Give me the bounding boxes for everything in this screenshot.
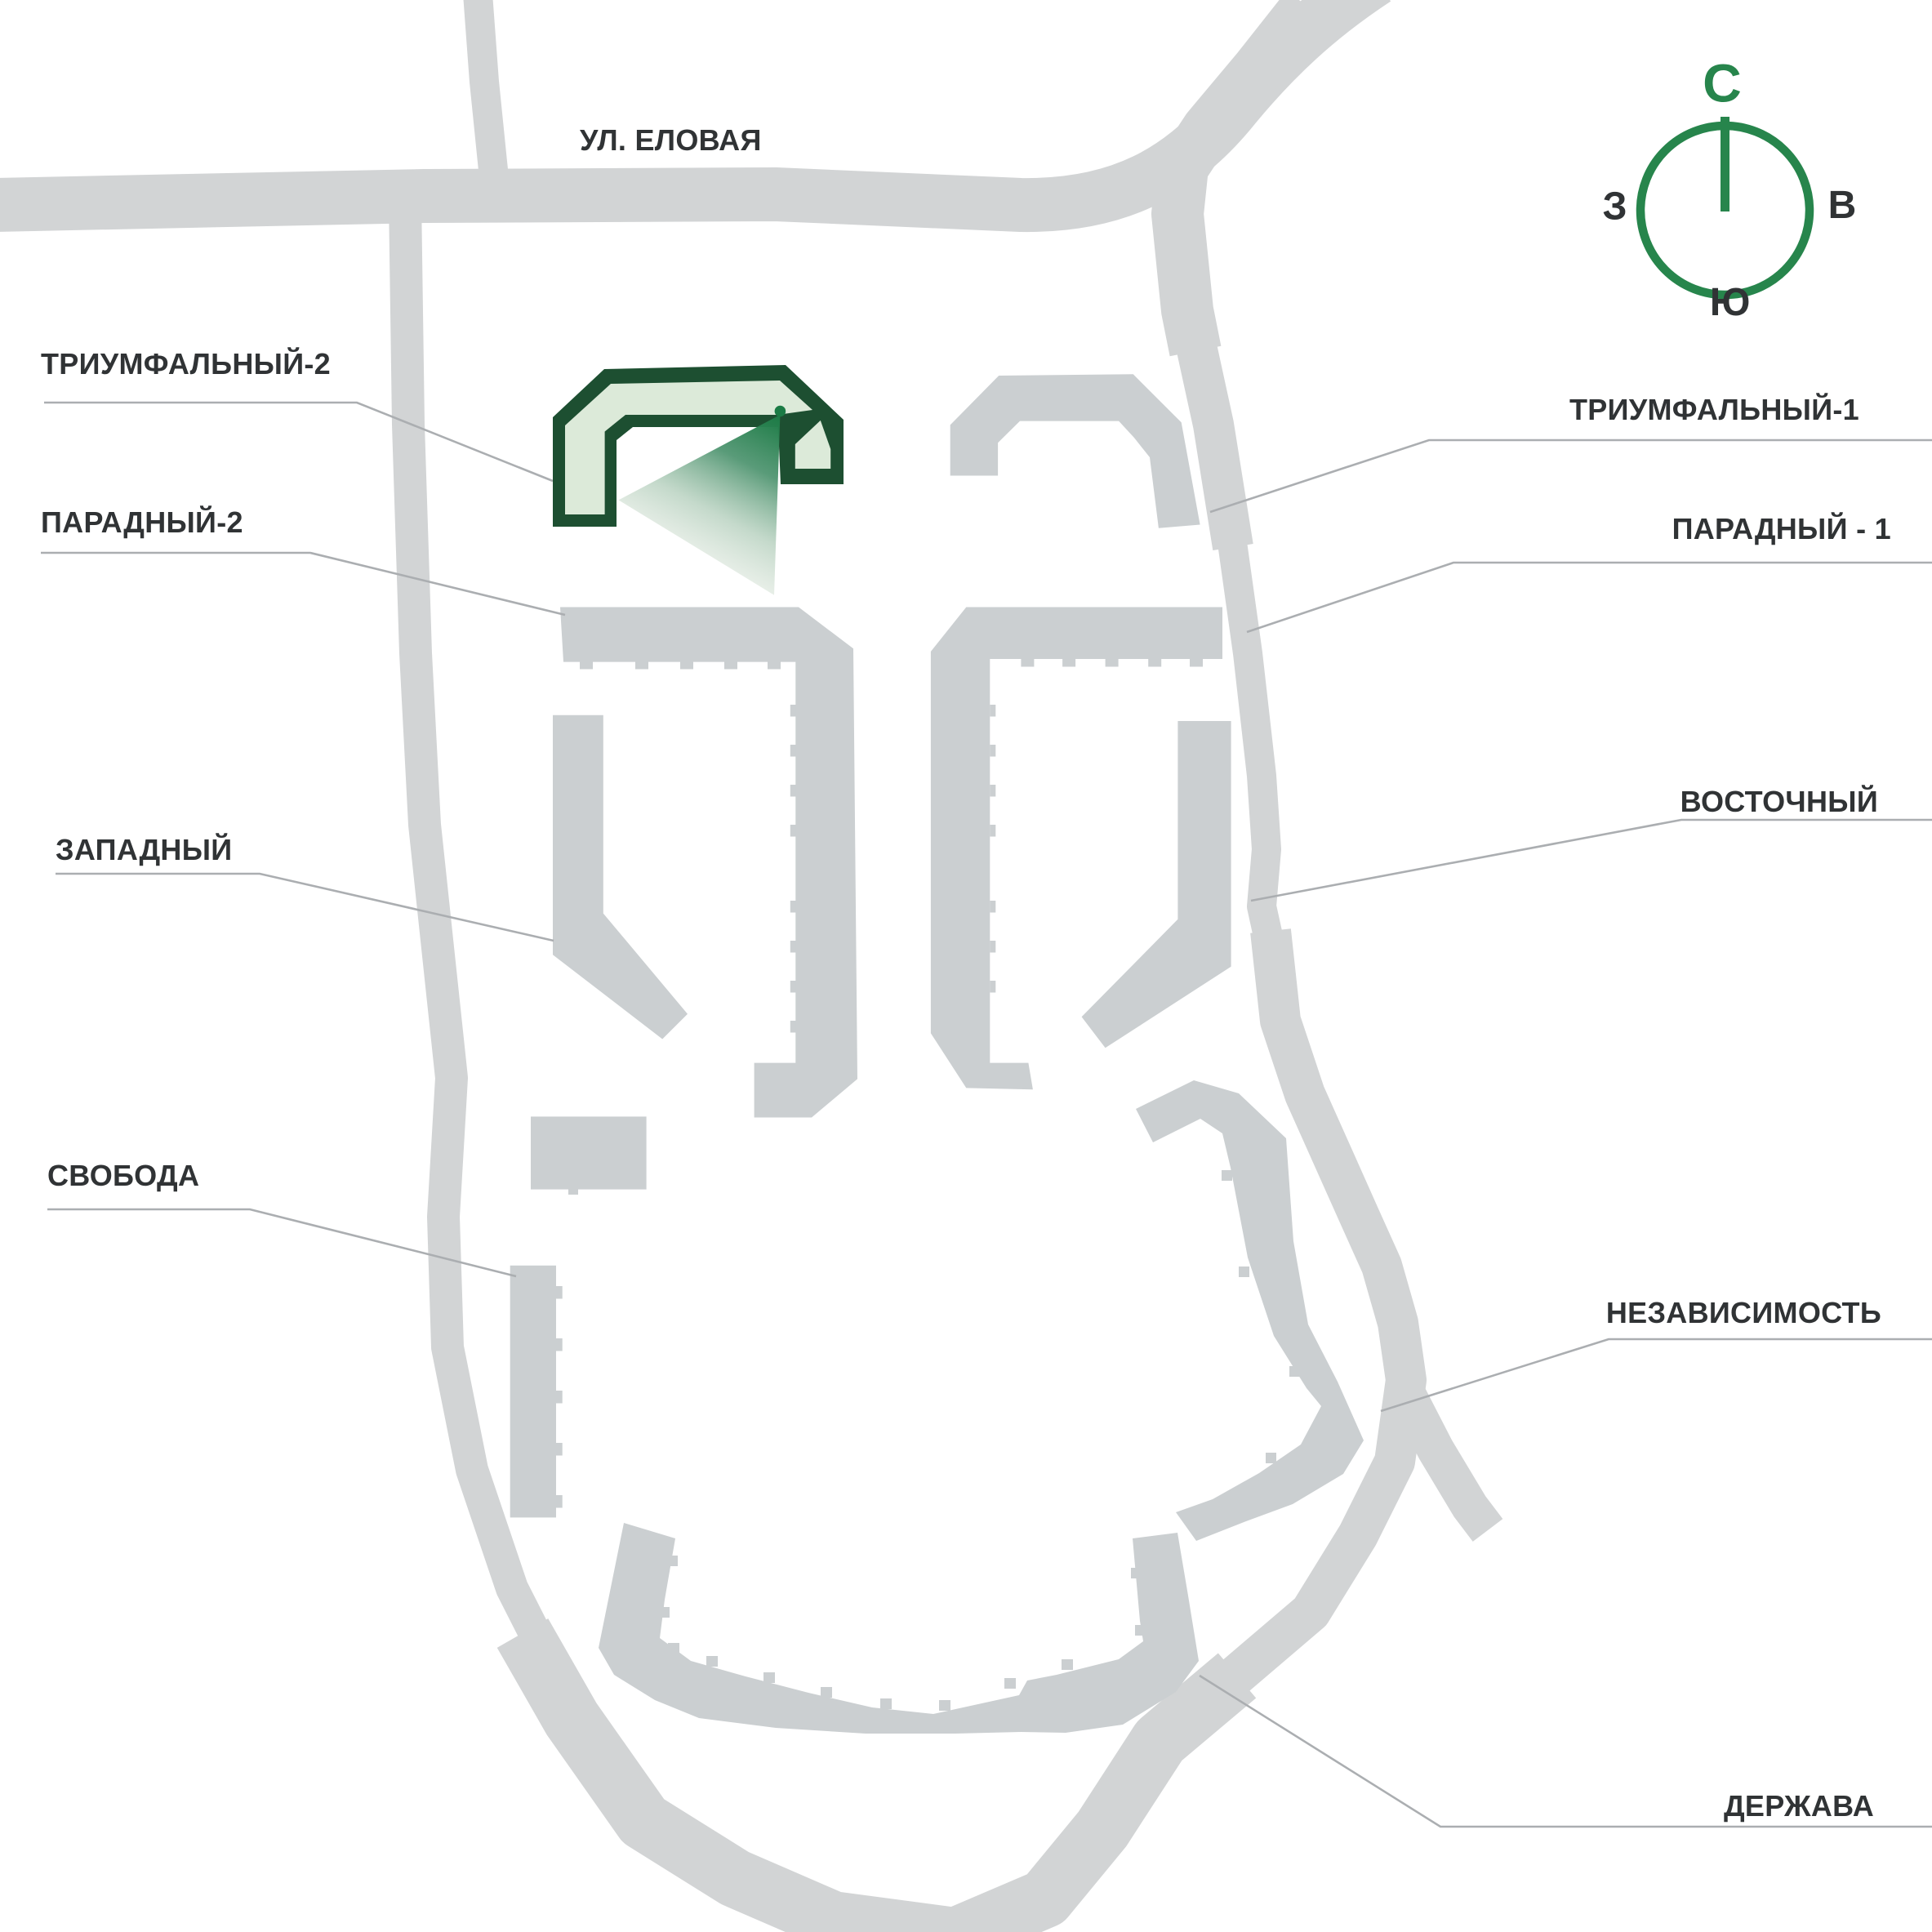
svg-text:ДЕРЖАВА: ДЕРЖАВА xyxy=(1724,1789,1874,1823)
svg-text:С: С xyxy=(1703,52,1742,113)
svg-text:ВОСТОЧНЫЙ: ВОСТОЧНЫЙ xyxy=(1680,784,1878,818)
svg-text:З: З xyxy=(1602,185,1627,229)
svg-text:ТРИУМФАЛЬНЫЙ-1: ТРИУМФАЛЬНЫЙ-1 xyxy=(1569,392,1859,426)
svg-text:СВОБОДА: СВОБОДА xyxy=(47,1159,199,1192)
svg-text:Ю: Ю xyxy=(1710,281,1751,324)
svg-text:ТРИУМФАЛЬНЫЙ-2: ТРИУМФАЛЬНЫЙ-2 xyxy=(41,346,331,381)
svg-text:ЗАПАДНЫЙ: ЗАПАДНЫЙ xyxy=(56,832,232,866)
svg-text:ПАРАДНЫЙ - 1: ПАРАДНЫЙ - 1 xyxy=(1672,511,1891,545)
svg-text:ПАРАДНЫЙ-2: ПАРАДНЫЙ-2 xyxy=(41,505,243,539)
svg-text:НЕЗАВИСИМОСТЬ: НЕЗАВИСИМОСТЬ xyxy=(1606,1296,1881,1329)
svg-text:УЛ. ЕЛОВАЯ: УЛ. ЕЛОВАЯ xyxy=(580,123,762,157)
svg-text:В: В xyxy=(1828,184,1857,227)
